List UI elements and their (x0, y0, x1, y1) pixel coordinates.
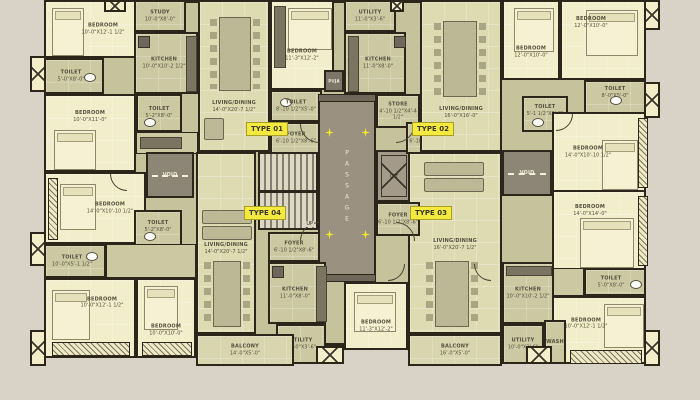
room-type01-toilet-mid: TOILET8'-10 1/2"X5'-0" (270, 90, 322, 122)
wardrobe-hatch (52, 342, 130, 356)
room-type02-toilet-e: TOILET8'-0"X5'-0" (584, 80, 646, 114)
duct (644, 330, 660, 366)
sofa (424, 178, 484, 192)
duct (30, 232, 46, 266)
room-type02-kitchen: KITCHEN11'-0"X8'-0" (344, 32, 406, 94)
room-type02-utility: UTILITY11'-0"X3'-6" (344, 0, 396, 32)
room-type01-kitchen: KITCHEN10'-0"X10'-2 1/2" (134, 32, 198, 94)
threshold-top (318, 94, 376, 102)
duct (104, 0, 126, 12)
duct (316, 346, 344, 364)
toilet-icon (144, 232, 156, 241)
room-type04-toilet-c: TOILET10'-0"X5'-1 1/2" (44, 244, 106, 278)
tag-type-02: TYPE 02 (412, 122, 454, 136)
void-dashes (508, 173, 546, 175)
bed (144, 286, 178, 330)
duct (644, 0, 660, 30)
tag-type-04: TYPE 04 (244, 206, 286, 220)
bed (514, 8, 554, 52)
duct (526, 346, 552, 364)
shoe-rack (140, 137, 182, 149)
room-type04-toilet-d: TOILET5'-2"X8'-0" (134, 210, 182, 246)
room-type03-bedroom-k: BEDROOM14'-0"X14'-0" (552, 190, 646, 270)
wardrobe-hatch (48, 178, 58, 240)
bed (354, 292, 396, 332)
passage-label: PASSAGE (344, 150, 351, 227)
room-type01-toilet-b: TOILET5'-2"X8'-0" (136, 94, 182, 132)
room-type04-balcony: BALCONY14'-0"X5'-0" (196, 334, 294, 366)
wardrobe-hatch (638, 196, 648, 266)
bed (52, 8, 84, 56)
lift-label: LIFT (378, 174, 410, 179)
room-type03-kitchen: KITCHEN10'-0"X10'-2 1/2" (502, 262, 554, 324)
wardrobe-niche (136, 132, 198, 154)
room-type01-bedroom-b: BEDROOM10'-0"X11'-0" (44, 94, 136, 172)
floor-plan: BEDROOM10'-0"X12'-1 1/2" TOILET5'-0"X8'-… (0, 0, 700, 400)
room-type04-bedroom-d: BEDROOM10'-0"X12'-1 1/2" (44, 278, 136, 358)
bed (60, 184, 96, 230)
toilet-icon (610, 96, 622, 105)
passage: PASSAGE (318, 94, 376, 282)
bed (52, 290, 90, 340)
dining-table (434, 18, 486, 100)
duct (644, 82, 660, 118)
bed (604, 304, 644, 348)
kitchen-counter (186, 36, 197, 92)
wardrobe-hatch (570, 350, 642, 364)
toilet-icon (630, 280, 642, 289)
wardrobe (274, 6, 286, 68)
bed (54, 130, 96, 170)
dining-table (210, 14, 260, 94)
toilet-icon (144, 118, 156, 127)
room-type01-study: STUDY10'-0"X8'-0" (134, 0, 186, 32)
kitchen-counter (348, 36, 359, 92)
entry-niche (106, 244, 196, 278)
fridge (394, 36, 406, 48)
room-type01-toilet-a: TOILET5'-0"X8'-0" (44, 58, 104, 94)
room-puja: PUJA (324, 70, 344, 92)
void-dashes (152, 175, 188, 177)
lift: LIFT (376, 150, 412, 202)
tag-type-03: TYPE 03 (410, 206, 452, 220)
duct (30, 330, 46, 366)
stair-up-label: UP (305, 221, 314, 227)
room-type02-bedroom-i: BEDROOM12'-0"X10'-0" (560, 0, 646, 80)
dress-niche (552, 268, 584, 296)
toilet-icon (532, 118, 544, 127)
room-void-left: VOID (146, 152, 194, 198)
wardrobe-hatch (142, 342, 192, 356)
fridge (138, 36, 150, 48)
room-type04-bedroom-n: BEDROOM11'-3"X12'-2" (344, 282, 408, 350)
duct (30, 56, 46, 92)
room-type04-kitchen: KITCHEN11'-0"X8'-0" (268, 262, 326, 324)
toilet-icon (86, 252, 98, 261)
kitchen-counter (316, 266, 327, 322)
room-type03-toilet-g: TOILET5'-0"X8'-0" (584, 268, 646, 296)
wardrobe-hatch (638, 118, 648, 188)
dining-table (204, 258, 250, 330)
duct (390, 0, 404, 12)
room-type04-bedroom-d2: BEDROOM10'-0"X10'-0" (136, 278, 196, 358)
dining-table (426, 258, 478, 330)
tag-type-01: TYPE 01 (246, 122, 288, 136)
toilet-icon (84, 73, 96, 82)
room-type04-bedroom-c: BEDROOM14'-0"X10'-10 1/2" (44, 172, 146, 244)
kitchen-counter (506, 266, 552, 276)
sofa (424, 162, 484, 176)
bed (288, 8, 332, 50)
toilet-icon (280, 98, 292, 107)
bed (586, 10, 638, 56)
fridge (272, 266, 284, 278)
room-type03-balcony: BALCONY16'-0"X5'-0" (408, 334, 502, 366)
room-type03-living-dining: LIVING/DINING16'-0"X20'-7 1/2" (408, 152, 502, 334)
sofa (204, 118, 224, 140)
bed (602, 140, 638, 190)
room-type03-bedroom-l: BEDROOM10'-0"X12'-1 1/2" (552, 296, 646, 364)
room-void-right: VOID (502, 150, 552, 196)
bed (580, 218, 634, 268)
room-type04-living-dining: LIVING/DINING14'-0"X20'-7 1/2" (196, 152, 256, 334)
sofa (202, 226, 252, 240)
room-type02-bedroom-h: BEDROOM12'-0"X10'-0" (502, 0, 560, 80)
